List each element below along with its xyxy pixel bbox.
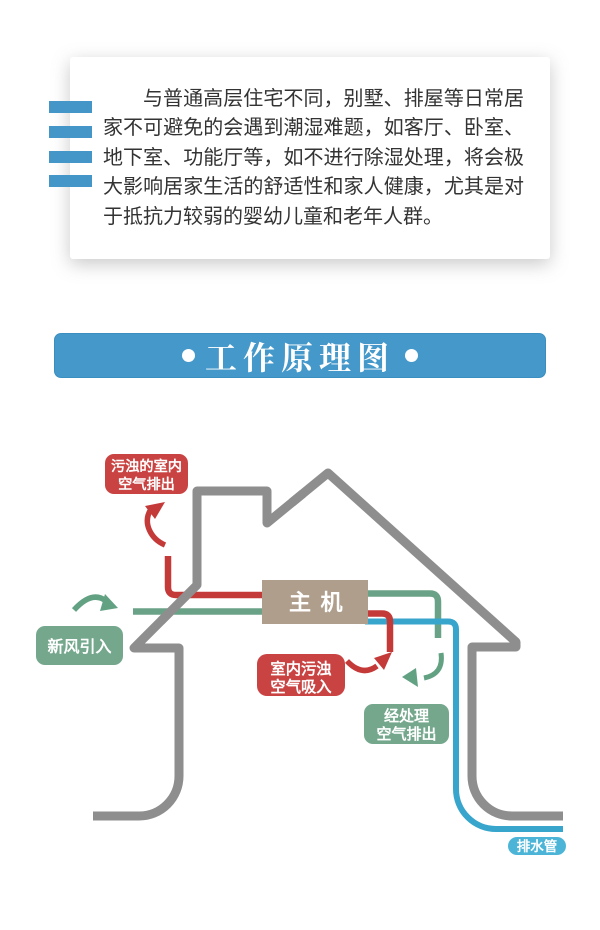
svg-text:空气排出: 空气排出 <box>376 725 436 743</box>
svg-text:排水管: 排水管 <box>517 838 558 854</box>
svg-text:空气吸入: 空气吸入 <box>270 678 332 696</box>
svg-text:经处理: 经处理 <box>384 707 429 725</box>
svg-text:空气排出: 空气排出 <box>118 476 175 493</box>
svg-text:机: 机 <box>320 590 342 615</box>
svg-text:新风引入: 新风引入 <box>47 637 111 656</box>
svg-text:室内污浊: 室内污浊 <box>270 660 332 678</box>
svg-text:污浊的室内: 污浊的室内 <box>111 458 182 475</box>
svg-text:主: 主 <box>289 590 311 615</box>
